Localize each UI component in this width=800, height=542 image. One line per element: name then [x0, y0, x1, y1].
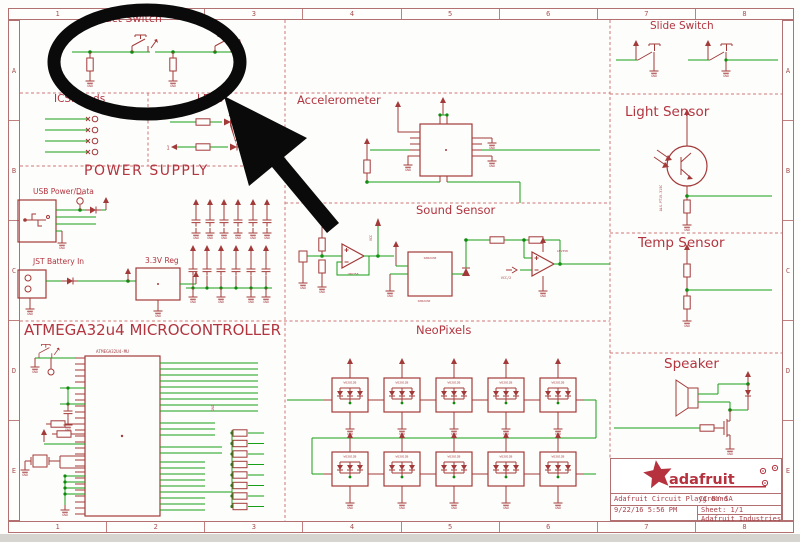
schematic-sheet: 1 2 3 4 5 6 7 8 1 2 3 4 5 6 7 8 A B C D … [0, 0, 800, 542]
title-sound-sensor: Sound Sensor [416, 205, 495, 217]
title-power-supply: POWER SUPPLY [84, 164, 209, 178]
svg-text:SPW2430: SPW2430 [424, 256, 437, 260]
company-name: Adafruit Industries [701, 515, 781, 523]
svg-text:LMV358: LMV358 [557, 249, 568, 253]
license: CC BY-SA [699, 495, 733, 503]
label-usb-power: USB Power/Data [33, 188, 94, 196]
title-neopixels: NeoPixels [416, 325, 471, 337]
window-edge [0, 534, 800, 542]
logo-star-icon [643, 460, 671, 488]
neopixels-schematic [287, 358, 596, 510]
temp-sensor-schematic [683, 244, 773, 328]
label-33v-reg: 3.3V Reg [145, 257, 179, 265]
title-accelerometer: Accelerometer [297, 95, 381, 107]
svg-text:1: 1 [166, 146, 169, 152]
title-block: adafruit Adafruit Circuit Playground CC … [610, 458, 782, 521]
leds-schematic: 1 [166, 112, 252, 152]
title-atmega: ATMEGA32u4 MICROCONTROLLER [24, 323, 281, 338]
tact-switch-schematic [72, 35, 241, 88]
sound-sensor-schematic: LMV358 VCC SPW2430 SPW2430 LMV358 VCC/2 [299, 211, 611, 303]
light-sensor-schematic: ALS-PT19-315C [654, 109, 772, 232]
section-borders [20, 20, 782, 521]
svg-text:ALS-PT19-315C: ALS-PT19-315C [659, 185, 663, 212]
speaker-schematic [614, 371, 751, 456]
svg-text:GND: GND [211, 405, 215, 411]
power-supply-schematic: VBUS [18, 192, 272, 318]
title-ic-sp-pads: ICSP Pads [54, 94, 105, 105]
svg-text:SPW2430: SPW2430 [418, 299, 431, 303]
decoupling-caps-b [186, 245, 272, 304]
title-leds: LEDs [197, 94, 223, 105]
title-light-sensor: Light Sensor [625, 106, 709, 120]
title-tact-switch: Tact Switch [100, 13, 162, 24]
svg-text:adafruit: adafruit [669, 472, 735, 488]
svg-text:VCC/2: VCC/2 [501, 276, 512, 280]
title-temp-sensor: Temp Sensor [638, 237, 725, 251]
icsp-pads-schematic [45, 116, 98, 155]
doc-date: 9/22/16 5:56 PM [614, 506, 677, 514]
decoupling-caps-a [192, 199, 272, 240]
accelerometer-schematic [364, 97, 600, 203]
title-speaker: Speaker [664, 358, 719, 372]
svg-text:VCC: VCC [369, 235, 373, 241]
adafruit-logo: adafruit [611, 459, 781, 493]
svg-text:ATMEGA32U4-MU: ATMEGA32U4-MU [96, 349, 129, 354]
atmega-schematic: ATMEGA32U4-MU GND [21, 344, 265, 516]
sheet-number: Sheet: 1/1 [701, 506, 743, 514]
slide-switch-schematic [616, 40, 778, 78]
title-slide-switch: Slide Switch [650, 21, 714, 32]
label-jst-battery: JST Battery In [33, 258, 84, 266]
